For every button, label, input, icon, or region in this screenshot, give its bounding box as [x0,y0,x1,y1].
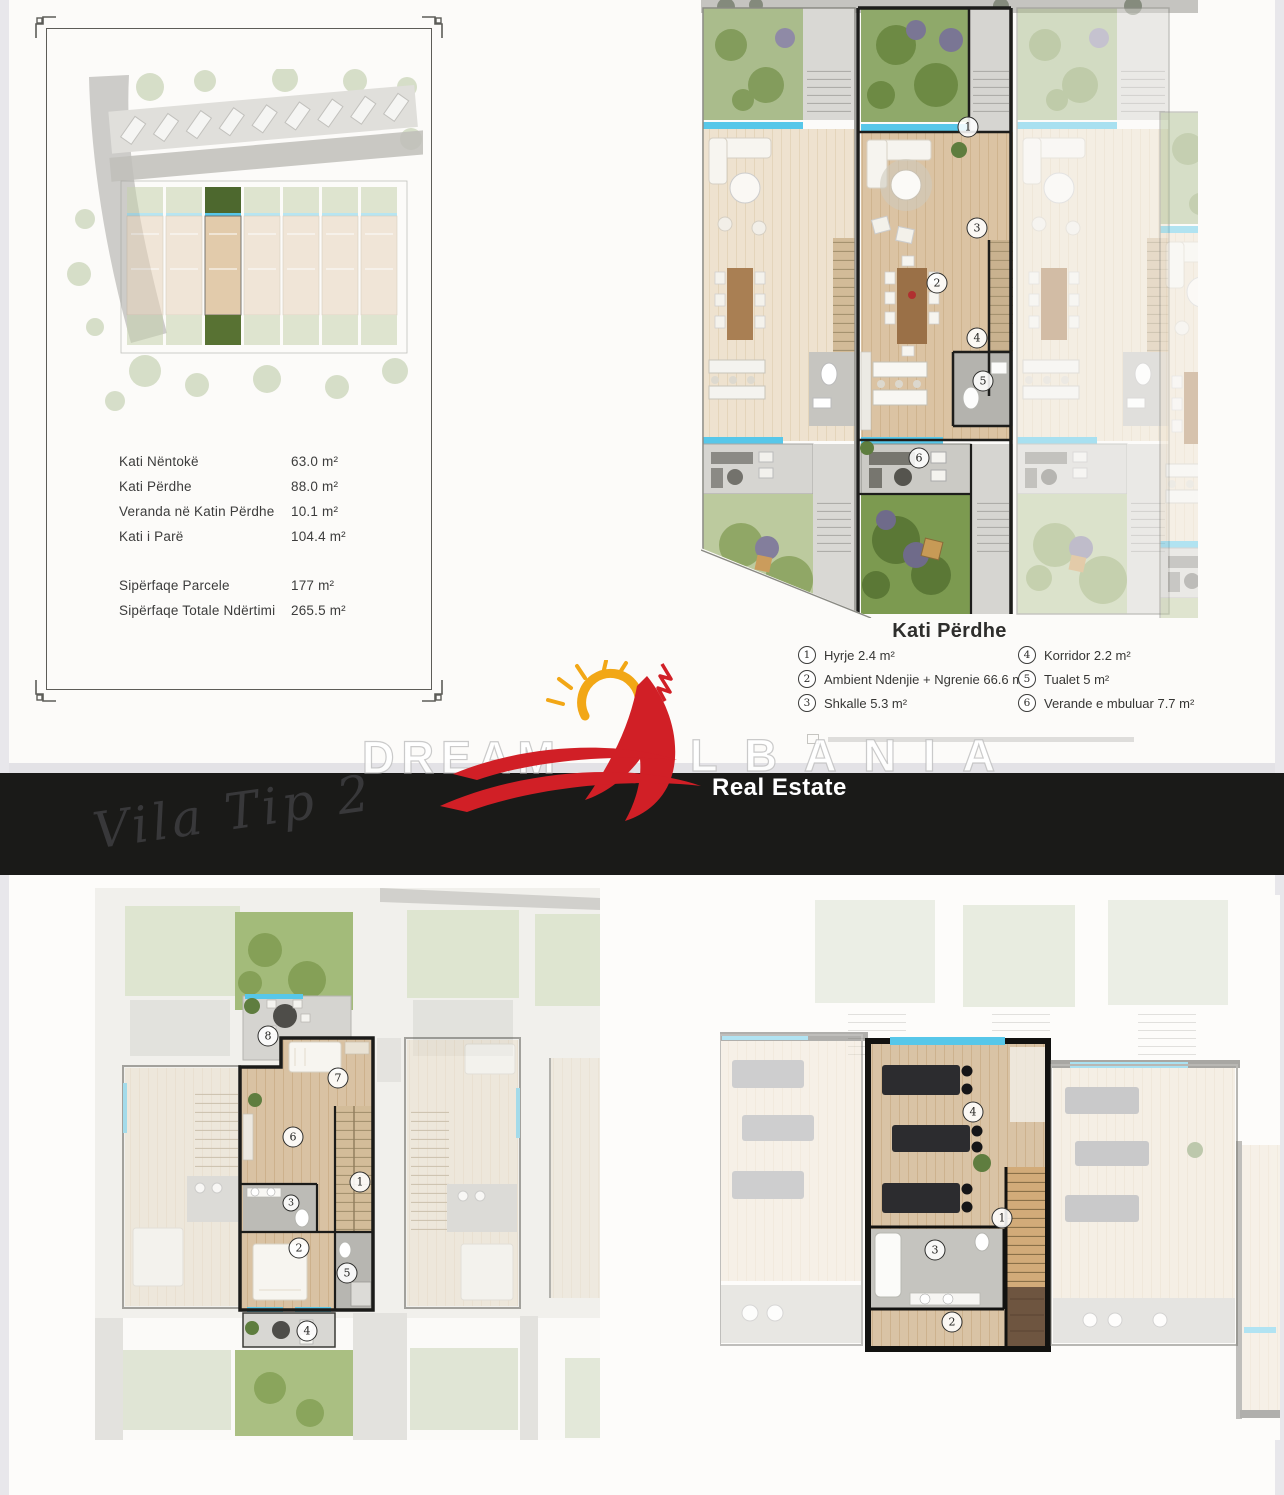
legend-label: Korridor 2.2 m² [1044,648,1131,663]
legend-column-left: 1Hyrje 2.4 m² 2Ambient Ndenjie + Ngrenie… [798,643,1027,715]
legend-number: 4 [1018,646,1036,664]
bottom-panel: 1 2 3 4 5 6 7 8 [9,875,1275,1495]
frame-corner-ornament [421,15,445,39]
first-floor-plan: 1 2 3 4 5 6 7 8 [95,888,600,1440]
legend-item: 2Ambient Ndenjie + Ngrenie 66.6 m² [798,667,1027,691]
site-plan-drawing [55,69,423,439]
legend-number: 3 [798,694,816,712]
site-plan-frame: Kati Nëntokë63.0 m² Kati Përdhe88.0 m² V… [46,28,432,690]
room-marker: 5 [973,371,994,392]
highlighted-unit [858,8,1013,614]
row-value: 10.1 m² [291,504,338,519]
frame-corner-ornament [33,15,57,39]
area-table: Kati Nëntokë63.0 m² Kati Përdhe88.0 m² V… [119,449,419,623]
table-row: Veranda në Katin Përdhe10.1 m² [119,499,419,524]
room-marker: 3 [925,1240,946,1261]
row-value: 104.4 m² [291,529,346,544]
table-row: Kati i Parë104.4 m² [119,524,419,549]
room-marker: 2 [927,273,948,294]
fine-print-text-line [828,737,1134,742]
legend-label: Tualet 5 m² [1044,672,1109,687]
handwritten-plan-title: Vila Tip 2 [89,764,376,861]
row-value: 63.0 m² [291,454,338,469]
top-panel: Kati Nëntokë63.0 m² Kati Përdhe88.0 m² V… [9,0,1275,763]
room-marker: 3 [283,1195,300,1212]
legend-column-right: 4Korridor 2.2 m² 5Tualet 5 m² 6Verande e… [1018,643,1194,715]
row-label: Veranda në Katin Përdhe [119,504,291,519]
row-label: Sipërfaqe Totale Ndërtimi [119,603,291,618]
brochure-page: Kati Nëntokë63.0 m² Kati Përdhe88.0 m² V… [0,0,1284,1495]
room-marker: 7 [328,1068,349,1089]
row-value: 265.5 m² [291,603,346,618]
row-label: Kati Nëntokë [119,454,291,469]
room-marker: 5 [337,1263,358,1284]
plan-title: Kati Përdhe [701,620,1198,643]
room-marker: 1 [350,1172,371,1193]
legend-item: 4Korridor 2.2 m² [1018,643,1194,667]
legend-item: 6Verande e mbuluar 7.7 m² [1018,691,1194,715]
row-value: 177 m² [291,578,334,593]
table-row-total: Sipërfaqe Parcele177 m² [119,573,419,598]
legend-label: Shkalle 5.3 m² [824,696,907,711]
ground-floor-plan: 1 2 3 4 5 6 [701,0,1198,618]
room-marker: 6 [909,448,930,469]
room-marker: 4 [967,328,988,349]
row-label: Sipërfaqe Parcele [119,578,291,593]
room-marker: 4 [963,1102,984,1123]
legend-item: 1Hyrje 2.4 m² [798,643,1027,667]
legend-label: Hyrje 2.4 m² [824,648,895,663]
frame-corner-ornament [33,679,57,703]
fine-print-mark [807,734,819,744]
disclaimer-fine-print [807,734,1134,744]
legend-item: 3Shkalle 5.3 m² [798,691,1027,715]
row-label: Kati i Parë [119,529,291,544]
room-marker: 4 [297,1321,318,1342]
room-marker: 1 [992,1208,1013,1229]
basement-drawing [720,895,1280,1440]
table-row: Kati Nëntokë63.0 m² [119,449,419,474]
room-marker: 2 [289,1238,310,1259]
room-marker: 3 [967,218,988,239]
ground-floor-drawing [701,0,1198,618]
room-marker: 6 [283,1127,304,1148]
legend-number: 5 [1018,670,1036,688]
room-marker: 2 [942,1312,963,1333]
legend-number: 6 [1018,694,1036,712]
row-label: Kati Përdhe [119,479,291,494]
first-floor-drawing [95,888,600,1440]
row-value: 88.0 m² [291,479,338,494]
room-marker: 8 [258,1026,279,1047]
legend-label: Verande e mbuluar 7.7 m² [1044,696,1194,711]
page-left-margin [0,0,9,1495]
room-marker: 1 [958,117,979,138]
legend-number: 2 [798,670,816,688]
brand-banner: Vila Tip 2 [0,773,1284,875]
basement-plan: 1 2 3 4 [720,895,1280,1440]
legend-item: 5Tualet 5 m² [1018,667,1194,691]
table-row: Kati Përdhe88.0 m² [119,474,419,499]
frame-corner-ornament [421,679,445,703]
legend-number: 1 [798,646,816,664]
highlighted-unit [205,187,241,345]
table-row-total: Sipërfaqe Totale Ndërtimi265.5 m² [119,598,419,623]
legend-label: Ambient Ndenjie + Ngrenie 66.6 m² [824,672,1027,687]
